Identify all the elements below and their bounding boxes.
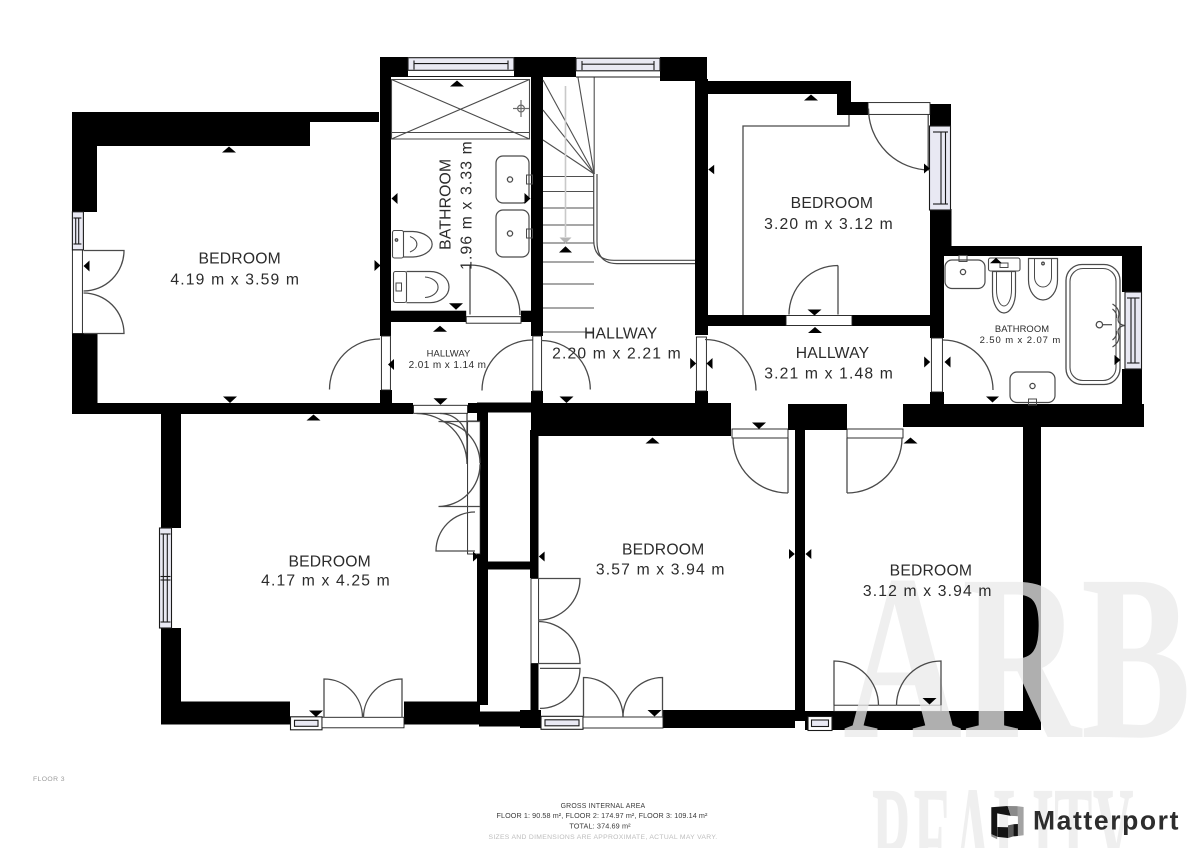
svg-text:HALLWAY: HALLWAY bbox=[584, 326, 658, 343]
svg-text:BEDROOM: BEDROOM bbox=[890, 562, 972, 579]
svg-text:HALLWAY: HALLWAY bbox=[427, 347, 471, 358]
svg-text:2.01 m x 1.14 m: 2.01 m x 1.14 m bbox=[409, 360, 487, 371]
svg-text:3.20 m x 3.12 m: 3.20 m x 3.12 m bbox=[764, 216, 894, 233]
svg-text:3.57 m x 3.94 m: 3.57 m x 3.94 m bbox=[596, 561, 726, 578]
svg-text:BEDROOM: BEDROOM bbox=[791, 195, 873, 212]
svg-text:2.20 m x 2.21 m: 2.20 m x 2.21 m bbox=[552, 346, 682, 363]
svg-text:4.17 m x 4.25 m: 4.17 m x 4.25 m bbox=[261, 573, 391, 590]
svg-text:Matterport: Matterport bbox=[1033, 806, 1180, 836]
svg-text:GROSS INTERNAL AREA: GROSS INTERNAL AREA bbox=[561, 803, 646, 810]
svg-text:BEDROOM: BEDROOM bbox=[198, 251, 280, 268]
svg-text:HALLWAY: HALLWAY bbox=[796, 345, 870, 362]
svg-text:3.12 m x 3.94 m: 3.12 m x 3.94 m bbox=[863, 583, 993, 600]
svg-text:SIZES AND DIMENSIONS ARE APPRO: SIZES AND DIMENSIONS ARE APPROXIMATE, AC… bbox=[489, 834, 718, 841]
svg-text:3.21 m x 1.48 m: 3.21 m x 1.48 m bbox=[764, 366, 894, 383]
svg-text:BATHROOM: BATHROOM bbox=[438, 159, 455, 250]
svg-text:BATHROOM: BATHROOM bbox=[995, 323, 1049, 334]
svg-text:BEDROOM: BEDROOM bbox=[622, 541, 704, 558]
svg-text:4.19 m x 3.59 m: 4.19 m x 3.59 m bbox=[170, 271, 300, 288]
svg-text:FLOOR 1: 90.58 m², FLOOR 2: 17: FLOOR 1: 90.58 m², FLOOR 2: 174.97 m², F… bbox=[496, 811, 708, 820]
svg-text:2.50 m x 2.07 m: 2.50 m x 2.07 m bbox=[980, 335, 1062, 346]
svg-text:BEDROOM: BEDROOM bbox=[288, 553, 370, 570]
svg-text:1.96 m x 3.33 m: 1.96 m x 3.33 m bbox=[459, 140, 476, 270]
svg-text:FLOOR 3: FLOOR 3 bbox=[33, 776, 65, 783]
svg-text:TOTAL: 374.69 m²: TOTAL: 374.69 m² bbox=[569, 822, 631, 831]
